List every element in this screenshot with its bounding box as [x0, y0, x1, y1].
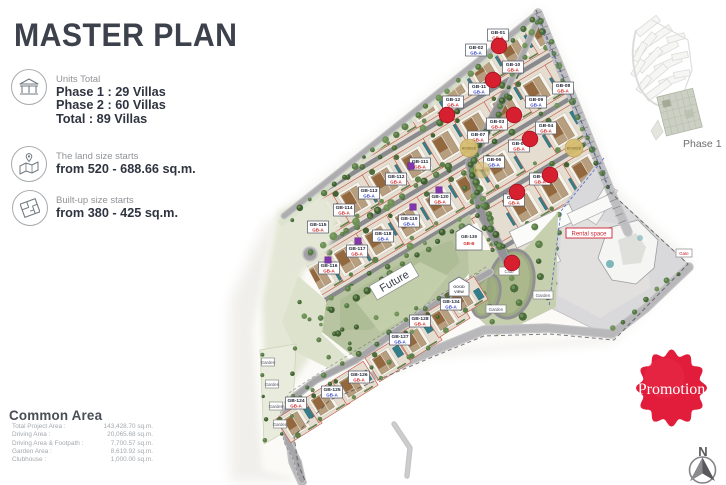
svg-text:GB-A: GB-A — [530, 103, 542, 108]
svg-text:GB-A: GB-A — [470, 51, 482, 56]
svg-text:GB-A: GB-A — [414, 322, 426, 327]
svg-text:GB-A: GB-A — [394, 340, 406, 345]
svg-text:GB-A: GB-A — [434, 200, 446, 205]
svg-text:GB-A: GB-A — [390, 180, 402, 185]
svg-text:GB-A: GB-A — [351, 252, 363, 257]
svg-text:GB-A: GB-A — [540, 129, 552, 134]
svg-text:GB-A: GB-A — [557, 89, 569, 94]
svg-text:Garden: Garden — [265, 382, 280, 387]
svg-text:GB-A: GB-A — [353, 378, 365, 383]
svg-text:GB-A: GB-A — [473, 90, 485, 95]
svg-text:BOOKED: BOOKED — [567, 146, 582, 150]
svg-text:GB-A: GB-A — [338, 211, 350, 216]
svg-text:GB-A: GB-A — [363, 194, 375, 199]
svg-text:GB-A: GB-A — [507, 68, 519, 73]
svg-text:GB-A: GB-A — [491, 125, 503, 130]
svg-text:Garden: Garden — [261, 360, 276, 365]
svg-text:VIEW: VIEW — [454, 290, 464, 294]
svg-text:GB-A: GB-A — [513, 147, 525, 152]
svg-text:GB-A: GB-A — [326, 393, 338, 398]
svg-text:GB-A: GB-A — [508, 201, 520, 206]
svg-text:Garden: Garden — [269, 404, 284, 409]
svg-text:BOOKED: BOOKED — [462, 146, 477, 150]
svg-text:BOOKED: BOOKED — [475, 168, 490, 172]
svg-text:GB-A: GB-A — [445, 305, 457, 310]
svg-text:GB-A: GB-A — [323, 269, 335, 274]
svg-text:Promotion: Promotion — [638, 381, 706, 398]
svg-text:GB-A: GB-A — [312, 228, 324, 233]
svg-text:Phase 1: Phase 1 — [683, 138, 722, 150]
svg-text:Garden: Garden — [273, 422, 288, 427]
svg-text:GB-139: GB-139 — [461, 234, 478, 239]
svg-text:GB-A: GB-A — [290, 404, 302, 409]
svg-text:GOOD: GOOD — [453, 285, 465, 289]
svg-text:Gate: Gate — [679, 251, 689, 256]
svg-text:GB-A: GB-A — [447, 103, 459, 108]
svg-text:Garden: Garden — [536, 293, 551, 298]
svg-text:GB-A: GB-A — [488, 163, 500, 168]
svg-text:GB-A: GB-A — [414, 165, 426, 170]
svg-text:GB-A: GB-A — [377, 237, 389, 242]
svg-text:Garden: Garden — [489, 307, 504, 312]
svg-text:GB-A: GB-A — [403, 222, 415, 227]
svg-text:Rental space: Rental space — [571, 231, 607, 237]
svg-text:GB-B: GB-B — [463, 241, 474, 246]
